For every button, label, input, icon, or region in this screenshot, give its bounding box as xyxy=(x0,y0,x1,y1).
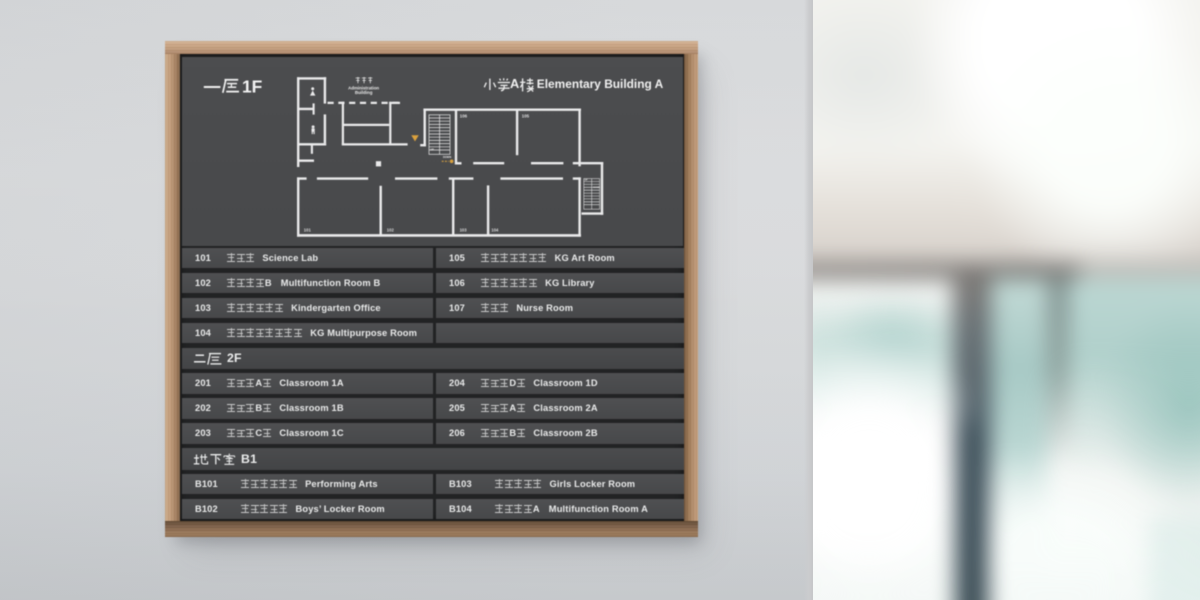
svg-text:Building: Building xyxy=(355,90,373,95)
svg-text:103: 103 xyxy=(460,228,468,233)
svg-text:102: 102 xyxy=(387,228,395,233)
svg-text:DOWN: DOWN xyxy=(443,155,451,159)
svg-text:A: A xyxy=(510,76,519,91)
svg-text:Elementary Building A: Elementary Building A xyxy=(537,77,664,91)
svg-text:DOWN: DOWN xyxy=(593,187,600,189)
svg-text:105: 105 xyxy=(522,114,530,119)
svg-text:1F: 1F xyxy=(242,77,262,97)
svg-text:UP: UP xyxy=(430,148,434,152)
svg-text:106: 106 xyxy=(460,114,468,119)
svg-text:104: 104 xyxy=(491,228,499,233)
svg-text:UP: UP xyxy=(585,180,589,182)
svg-text:101: 101 xyxy=(304,228,312,233)
